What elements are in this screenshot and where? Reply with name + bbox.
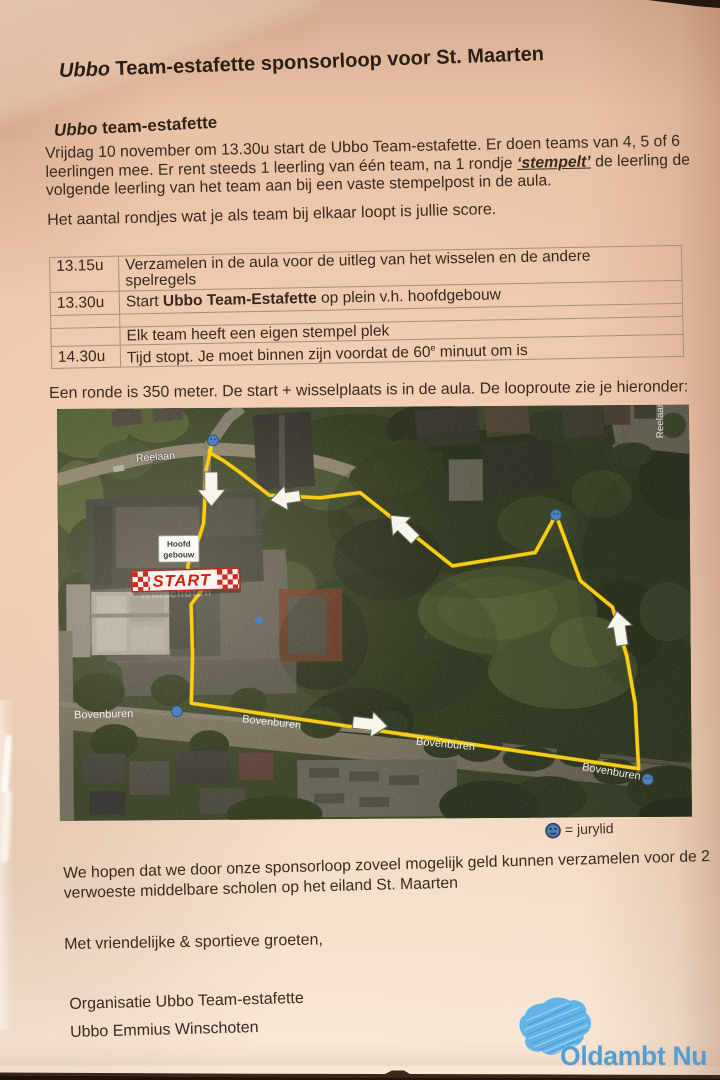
svg-text:Reelaan: Reelaan (136, 450, 176, 464)
svg-text:gebouw: gebouw (163, 550, 195, 559)
svg-text:Hoofd: Hoofd (167, 539, 191, 548)
svg-text:Bovenburen: Bovenburen (74, 708, 133, 721)
svg-text:Reelaan: Reelaan (655, 404, 666, 438)
svg-text:START: START (152, 571, 212, 591)
